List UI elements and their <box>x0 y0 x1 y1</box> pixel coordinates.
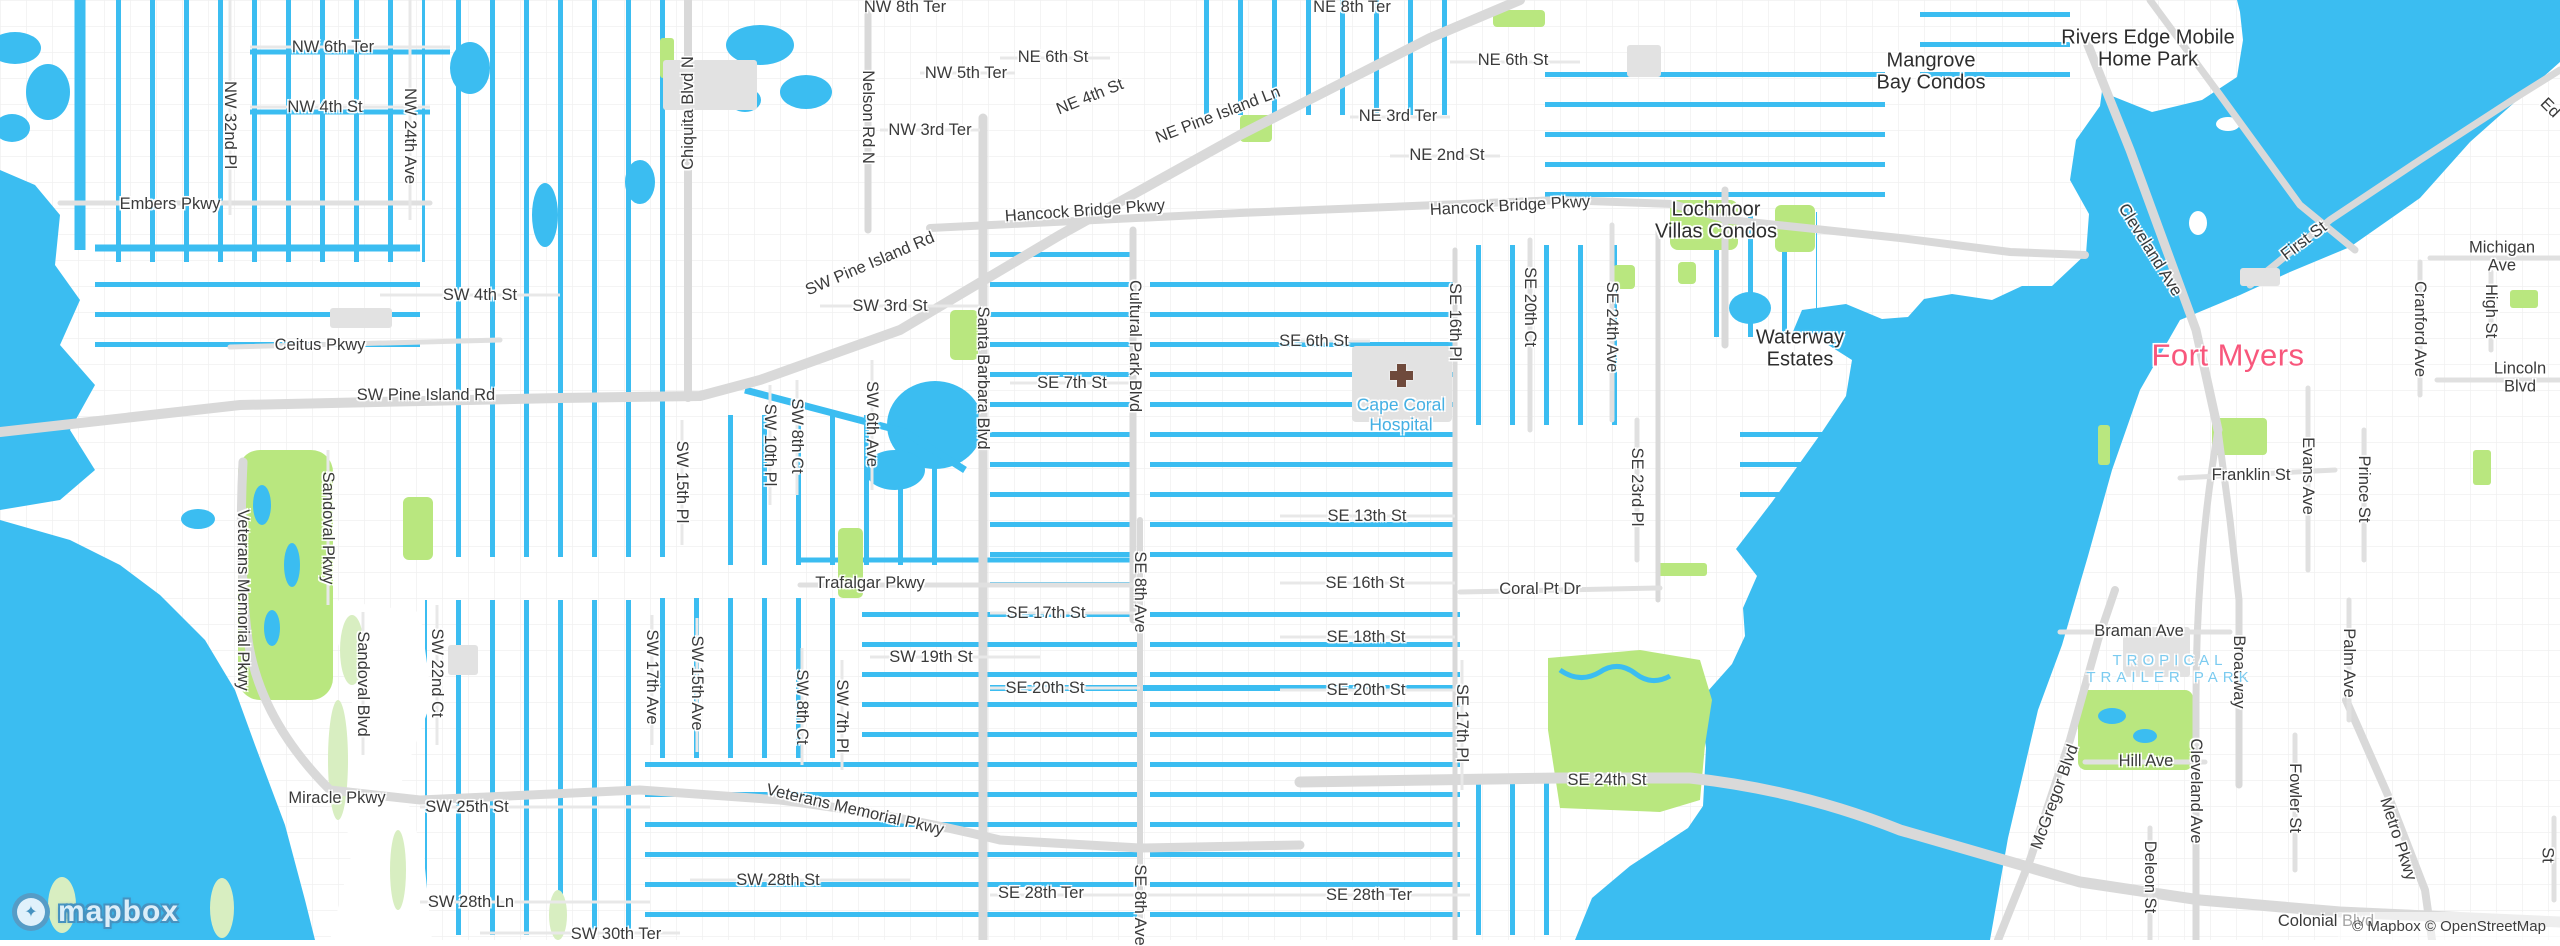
mapbox-wordmark: mapbox <box>58 895 179 929</box>
map-base-layer <box>0 0 2560 940</box>
map-attribution[interactable]: © Mapbox © OpenStreetMap <box>2338 912 2560 940</box>
mapbox-pin-icon: ✦ <box>12 893 50 931</box>
attribution-text: © Mapbox © OpenStreetMap <box>2352 918 2546 935</box>
map-canvas[interactable] <box>0 0 2560 940</box>
mapbox-logo[interactable]: ✦ mapbox <box>12 893 179 931</box>
hospital-cross-icon <box>1390 364 1413 387</box>
